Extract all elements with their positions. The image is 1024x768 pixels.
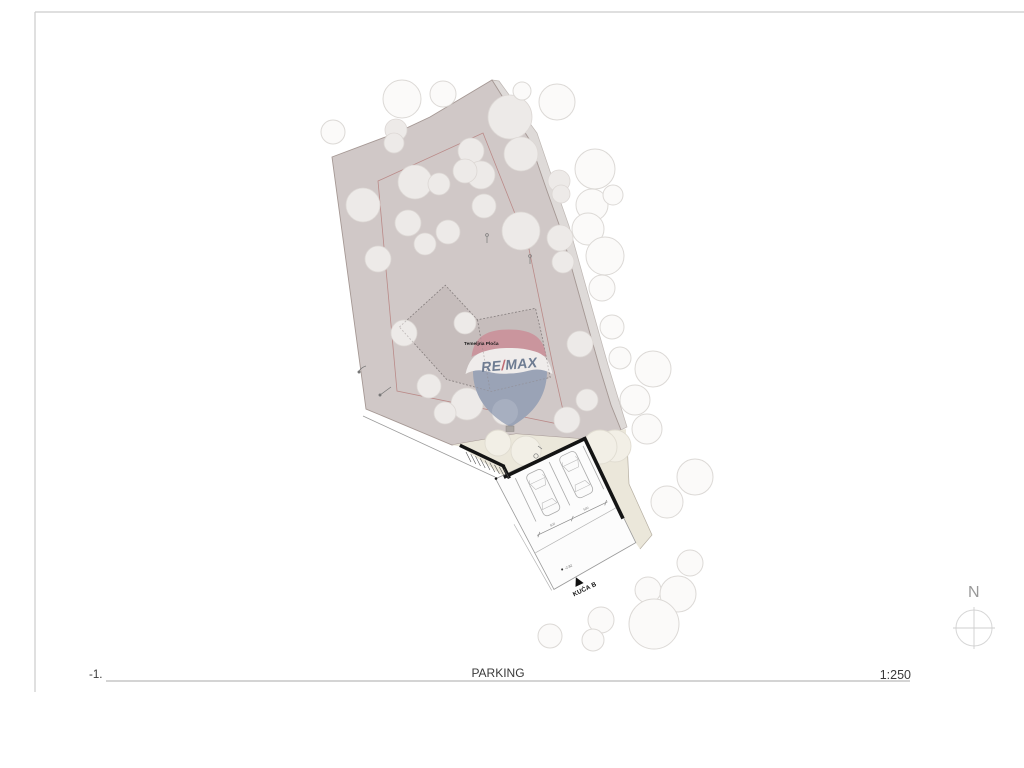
svg-text:Temeljna Ploča: Temeljna Ploča	[464, 341, 499, 347]
svg-text:-1.: -1.	[89, 669, 102, 681]
svg-text:PARKING: PARKING	[471, 666, 524, 680]
svg-text:N: N	[968, 584, 980, 601]
svg-text:1:250: 1:250	[880, 668, 911, 682]
